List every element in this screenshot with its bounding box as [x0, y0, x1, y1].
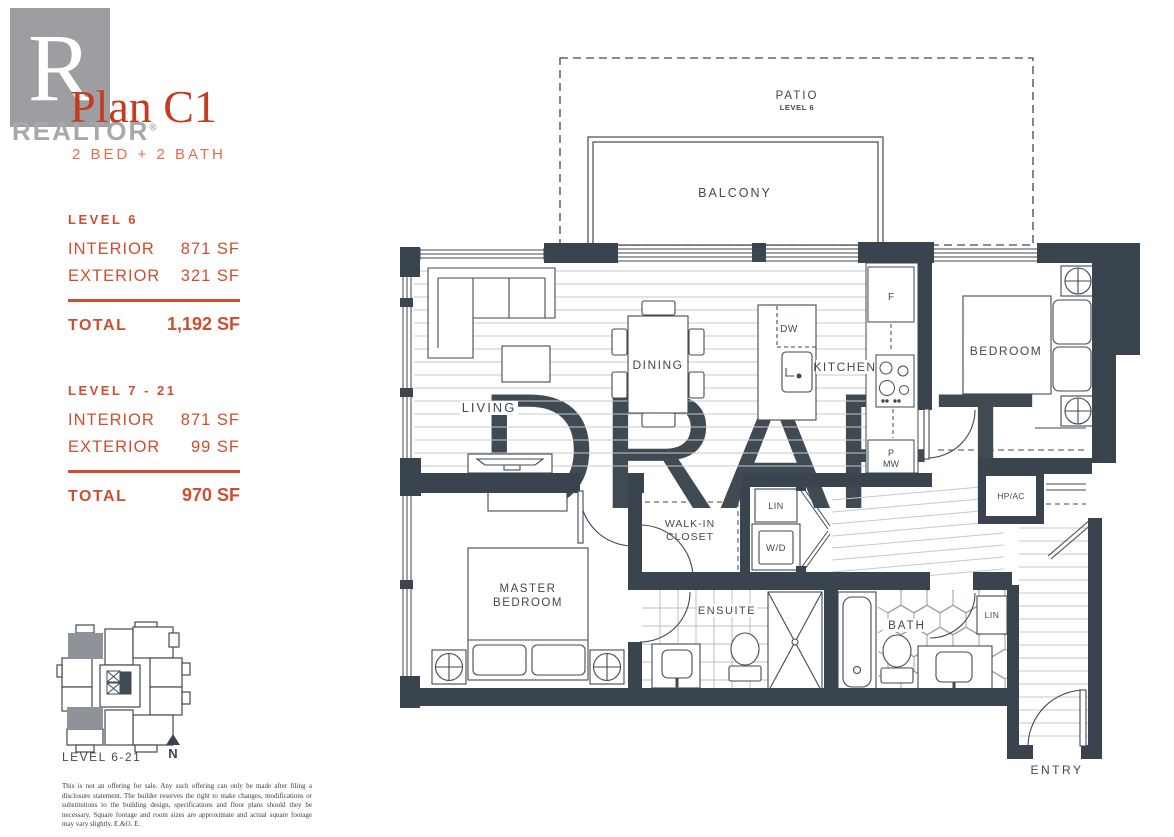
north-arrow-icon: N — [162, 734, 184, 761]
stats-total: TOTAL 970 SF — [68, 485, 240, 506]
cooktop — [876, 355, 914, 407]
page-title: Plan C1 — [70, 80, 217, 133]
north-arrow-triangle — [166, 734, 180, 745]
ensuite-vanity — [652, 644, 700, 691]
bedroom-nightstands — [1061, 266, 1095, 426]
lin-bath-label: LIN — [985, 610, 1000, 620]
pantry-label-line2: MW — [883, 459, 899, 469]
divider — [68, 470, 240, 473]
ensuite-label: ENSUITE — [698, 605, 756, 617]
stats-level-heading: LEVEL 7 - 21 — [68, 383, 240, 398]
coffee-table — [502, 346, 550, 382]
bedroom-label: BEDROOM — [970, 344, 1043, 358]
stats-row: EXTERIOR 99 SF — [68, 434, 240, 461]
lin-hall-label: LIN — [768, 501, 784, 511]
stats-level-6: LEVEL 6 INTERIOR 871 SF EXTERIOR 321 SF … — [68, 212, 240, 335]
stats-row: EXTERIOR 321 SF — [68, 263, 240, 290]
fridge-label: F — [888, 292, 894, 303]
divider — [68, 299, 240, 302]
master-label-line2: BEDROOM — [493, 597, 563, 609]
keyplan-level-label: LEVEL 6-21 — [62, 750, 141, 764]
walkin-label-line2: CLOSET — [666, 531, 714, 543]
walkin-label-line1: WALK-IN — [665, 518, 715, 530]
ensuite-shower — [768, 592, 822, 692]
patio-level-label: LEVEL 6 — [780, 103, 815, 112]
keyplan-core — [107, 671, 131, 694]
dining-label: DINING — [633, 358, 684, 372]
bath-label: BATH — [888, 620, 926, 632]
tv-console — [468, 454, 552, 473]
master-label-line1: MASTER — [500, 583, 557, 595]
sofa — [428, 268, 555, 358]
dishwasher-label: DW — [780, 324, 798, 335]
master-dresser — [488, 492, 567, 511]
stats-row: INTERIOR 871 SF — [68, 236, 240, 263]
entry-closet-shelves — [1046, 484, 1086, 504]
bath-toilet — [881, 635, 913, 683]
patio-label: PATIO — [776, 90, 819, 102]
entry-label: ENTRY — [1031, 763, 1084, 777]
kitchen-label: KITCHEN — [813, 360, 876, 374]
stats-total: TOTAL 1,192 SF — [68, 314, 240, 335]
bathtub — [838, 592, 876, 694]
floorplan-svg: DRAFT — [395, 50, 1150, 790]
master-bed — [468, 548, 588, 680]
wd-label: W/D — [766, 543, 786, 554]
pantry-label-line1: P — [888, 448, 894, 458]
living-label: LIVING — [462, 400, 517, 415]
floorplan-sheet: R REALTOR® Plan C1 2 BED + 2 BATH LEVEL … — [0, 0, 1174, 837]
disclaimer-text: This is not an offering for sale. Any su… — [62, 782, 312, 830]
page-subtitle: 2 BED + 2 BATH — [72, 146, 226, 163]
stats-level-heading: LEVEL 6 — [68, 212, 240, 227]
kitchen-island — [758, 305, 818, 420]
balcony-label: BALCONY — [698, 186, 772, 200]
ensuite-toilet — [729, 633, 761, 681]
stats-row: INTERIOR 871 SF — [68, 407, 240, 434]
hpac-label: HP/AC — [997, 491, 1024, 501]
stats-level-7-21: LEVEL 7 - 21 INTERIOR 871 SF EXTERIOR 99… — [68, 383, 240, 506]
